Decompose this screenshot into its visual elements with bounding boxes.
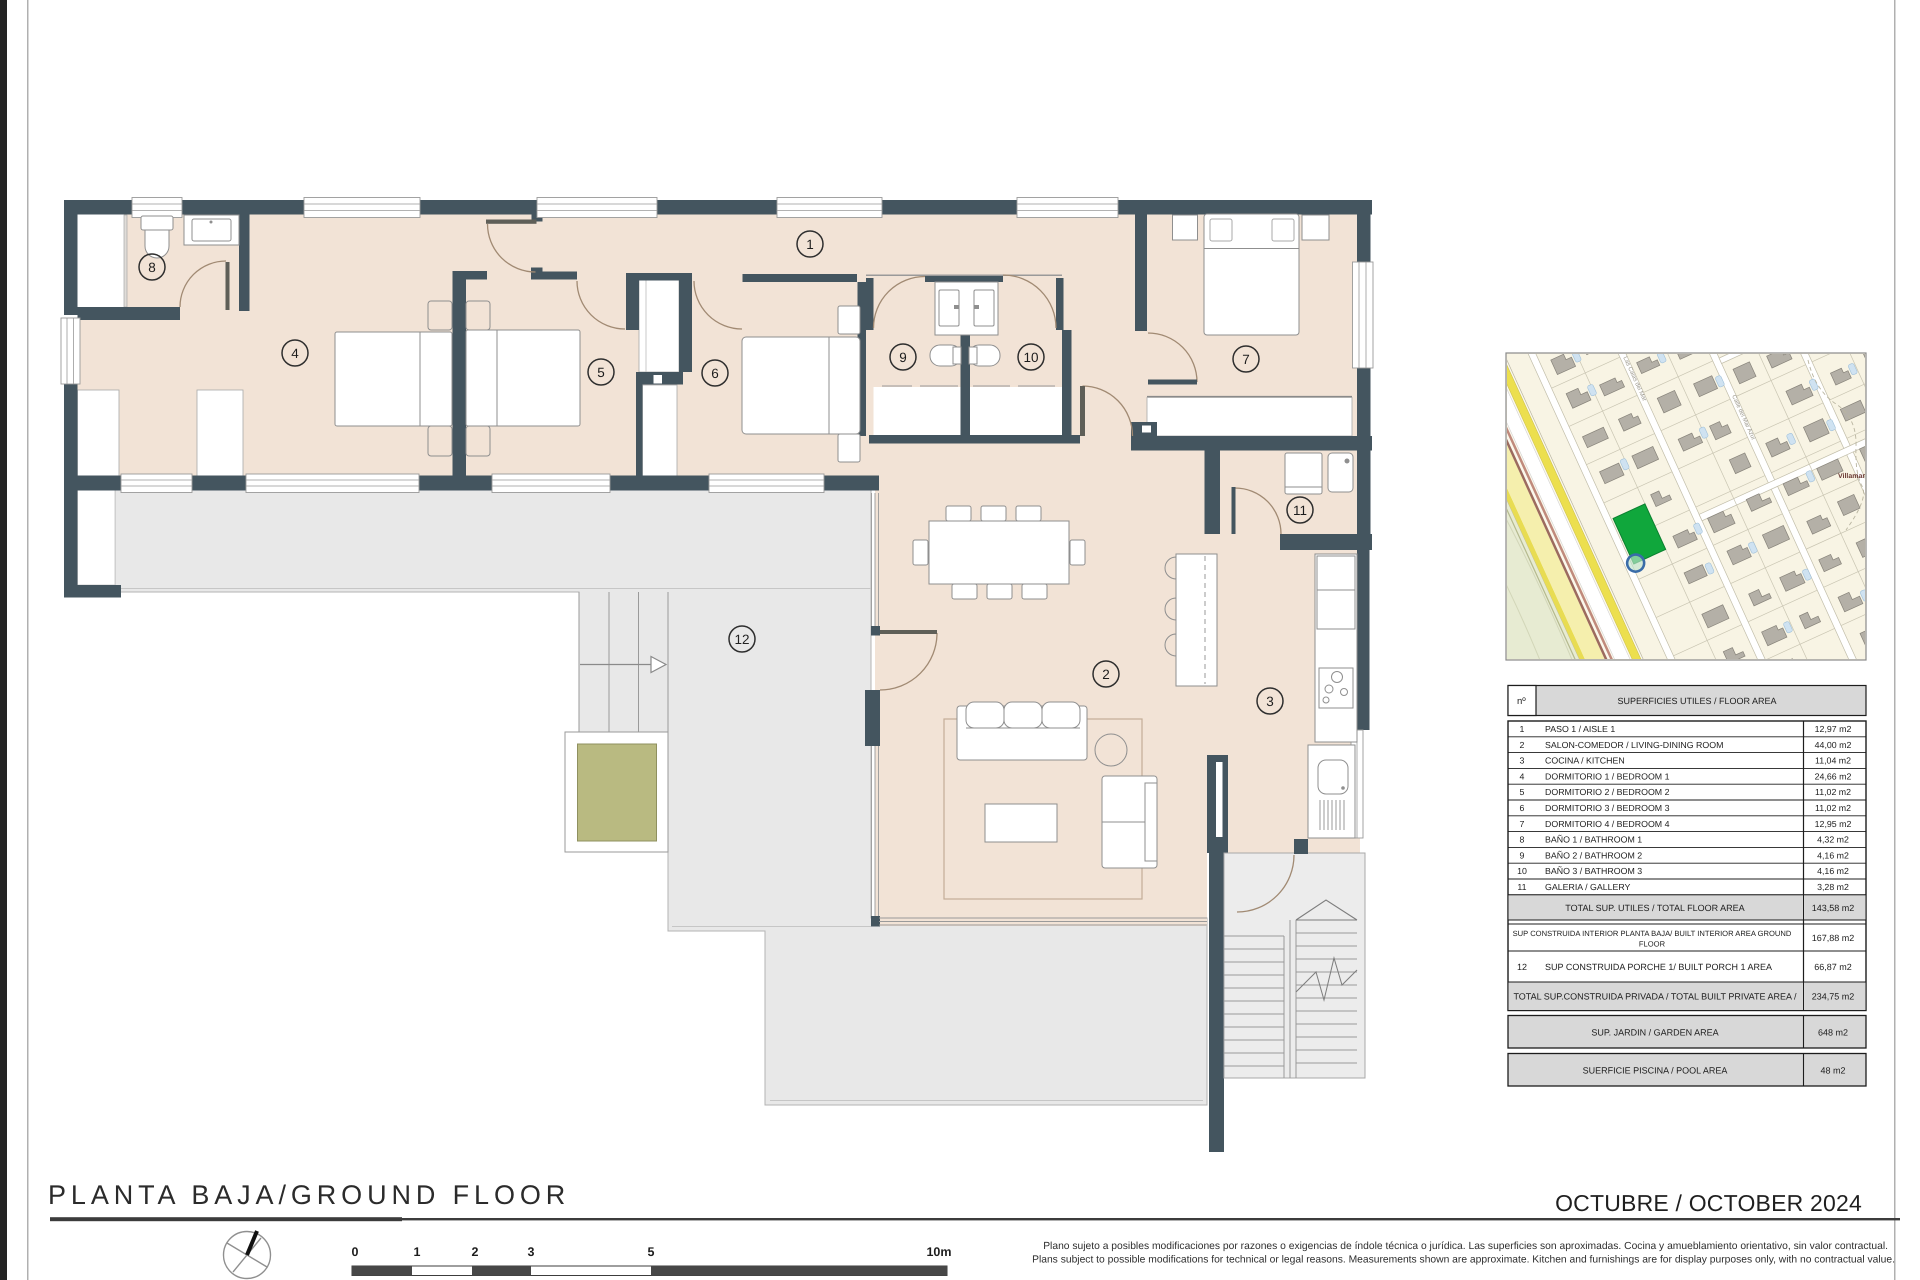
svg-text:5: 5 — [1520, 787, 1525, 797]
svg-text:12: 12 — [734, 632, 749, 647]
svg-text:DORMITORIO 3 / BEDROOM 3: DORMITORIO 3 / BEDROOM 3 — [1545, 803, 1670, 813]
svg-text:0: 0 — [352, 1245, 359, 1259]
svg-text:TOTAL SUP. UTILES / TOTAL FLOO: TOTAL SUP. UTILES / TOTAL FLOOR AREA — [1565, 903, 1744, 913]
svg-text:11,04 m2: 11,04 m2 — [1815, 756, 1851, 766]
svg-text:5: 5 — [597, 365, 605, 380]
svg-text:4: 4 — [1520, 771, 1525, 781]
svg-text:2: 2 — [472, 1245, 479, 1259]
svg-text:7: 7 — [1242, 352, 1250, 367]
svg-text:44,00 m2: 44,00 m2 — [1815, 740, 1852, 750]
svg-text:2: 2 — [1520, 740, 1525, 750]
svg-text:Plans subject to possible modi: Plans subject to possible modifications … — [1032, 1255, 1895, 1266]
svg-text:4,16 m2: 4,16 m2 — [1817, 850, 1849, 860]
svg-text:8: 8 — [148, 260, 156, 275]
svg-text:nº: nº — [1517, 696, 1526, 707]
svg-text:PASO 1 / AISLE 1: PASO 1 / AISLE 1 — [1545, 724, 1615, 734]
svg-text:SALON-COMEDOR / LIVING-DINING: SALON-COMEDOR / LIVING-DINING ROOM — [1545, 740, 1723, 750]
svg-text:4: 4 — [291, 346, 299, 361]
svg-text:648 m2: 648 m2 — [1818, 1028, 1848, 1038]
svg-text:SUP CONSTRUIDA PORCHE 1/ BUILT: SUP CONSTRUIDA PORCHE 1/ BUILT PORCH 1 A… — [1545, 962, 1772, 972]
svg-text:9: 9 — [899, 350, 907, 365]
svg-text:DORMITORIO 1 / BEDROOM 1: DORMITORIO 1 / BEDROOM 1 — [1545, 771, 1670, 781]
svg-text:1: 1 — [1520, 724, 1525, 734]
svg-text:12: 12 — [1517, 962, 1527, 972]
svg-text:3,28 m2: 3,28 m2 — [1817, 882, 1849, 892]
svg-text:6: 6 — [711, 366, 719, 381]
svg-text:Plano sujeto a posibles modifi: Plano sujeto a posibles modificaciones p… — [1043, 1241, 1888, 1252]
svg-text:11,02 m2: 11,02 m2 — [1815, 803, 1851, 813]
svg-text:12,95 m2: 12,95 m2 — [1815, 819, 1852, 829]
svg-text:DORMITORIO 2 / BEDROOM 2: DORMITORIO 2 / BEDROOM 2 — [1545, 787, 1670, 797]
svg-text:3: 3 — [528, 1245, 535, 1259]
svg-text:234,75 m2: 234,75 m2 — [1812, 992, 1855, 1002]
svg-text:10: 10 — [1517, 866, 1527, 876]
svg-text:11: 11 — [1517, 882, 1526, 892]
svg-text:2: 2 — [1102, 667, 1110, 682]
svg-text:24,66 m2: 24,66 m2 — [1815, 771, 1852, 781]
svg-text:TOTAL SUP.CONSTRUIDA PRIVADA /: TOTAL SUP.CONSTRUIDA PRIVADA / TOTAL BUI… — [1513, 992, 1797, 1002]
svg-text:10: 10 — [1023, 350, 1038, 365]
svg-text:9: 9 — [1520, 850, 1525, 860]
svg-text:7: 7 — [1520, 819, 1525, 829]
svg-text:SUPERFICIES UTILES / FLOOR AR: SUPERFICIES UTILES / FLOOR AREA — [1617, 696, 1776, 706]
svg-text:48 m2: 48 m2 — [1820, 1066, 1845, 1076]
svg-text:6: 6 — [1520, 803, 1525, 813]
svg-text:11,02 m2: 11,02 m2 — [1815, 787, 1851, 797]
svg-text:4,32 m2: 4,32 m2 — [1817, 835, 1849, 845]
svg-text:SUP. JARDIN / GARDEN AREA: SUP. JARDIN / GARDEN AREA — [1591, 1028, 1718, 1038]
svg-text:OCTUBRE / OCTOBER 2024: OCTUBRE / OCTOBER 2024 — [1555, 1190, 1862, 1216]
svg-text:143,58 m2: 143,58 m2 — [1812, 903, 1855, 913]
svg-text:COCINA / KITCHEN: COCINA / KITCHEN — [1545, 756, 1625, 766]
svg-text:10m: 10m — [926, 1245, 951, 1259]
svg-text:11: 11 — [1293, 503, 1307, 518]
svg-text:4,16 m2: 4,16 m2 — [1817, 866, 1849, 876]
svg-text:1: 1 — [414, 1245, 421, 1259]
svg-text:3: 3 — [1266, 694, 1274, 709]
svg-text:DORMITORIO 4 / BEDROOM 4: DORMITORIO 4 / BEDROOM 4 — [1545, 819, 1670, 829]
svg-text:BAÑO 1 / BATHROOM 1: BAÑO 1 / BATHROOM 1 — [1545, 835, 1642, 845]
svg-text:8: 8 — [1520, 835, 1525, 845]
svg-text:PLANTA BAJA/GROUND FLOOR: PLANTA BAJA/GROUND FLOOR — [48, 1180, 570, 1210]
svg-text:FLOOR: FLOOR — [1639, 940, 1666, 949]
svg-text:3: 3 — [1520, 756, 1525, 766]
svg-text:66,87 m2: 66,87 m2 — [1814, 962, 1852, 972]
svg-text:BAÑO 3 / BATHROOM 3: BAÑO 3 / BATHROOM 3 — [1545, 866, 1642, 876]
svg-text:SUP CONSTRUIDA INTERIOR PLANTA: SUP CONSTRUIDA INTERIOR PLANTA BAJA/ BUI… — [1513, 929, 1792, 938]
svg-text:12,97 m2: 12,97 m2 — [1815, 724, 1852, 734]
svg-text:SUERFICIE PISCINA / POOL AREA: SUERFICIE PISCINA / POOL AREA — [1583, 1066, 1728, 1076]
svg-text:BAÑO 2 / BATHROOM 2: BAÑO 2 / BATHROOM 2 — [1545, 850, 1642, 860]
svg-text:167,88 m2: 167,88 m2 — [1812, 933, 1855, 943]
svg-text:5: 5 — [648, 1245, 655, 1259]
svg-text:GALERIA / GALLERY: GALERIA / GALLERY — [1545, 882, 1631, 892]
svg-text:1: 1 — [806, 237, 814, 252]
